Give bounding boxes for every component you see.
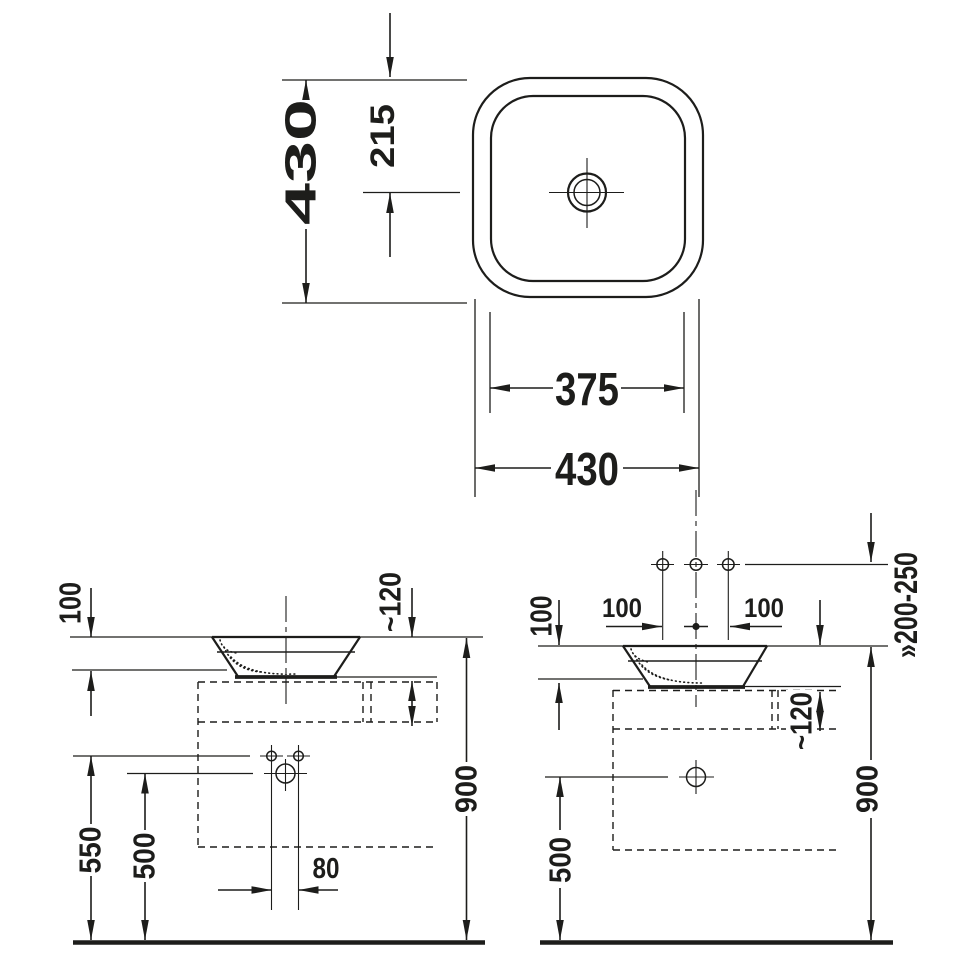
dim-label-overall-height: 430 bbox=[277, 99, 326, 225]
wall-tap-holes bbox=[651, 490, 740, 707]
dim-label-bowl-height-side: 100 bbox=[53, 582, 88, 624]
top-view-dimension-lines bbox=[306, 13, 699, 468]
basin-top-outline bbox=[473, 78, 703, 297]
cabinet-dashed-outline bbox=[198, 682, 437, 847]
dim-label-overall-width: 430 bbox=[555, 443, 619, 495]
top-view: 430 215 375 430 bbox=[277, 13, 704, 497]
dim-label-hole-spacing-right: 100 bbox=[744, 593, 784, 623]
dim-label-drain-height-side: 500 bbox=[127, 833, 162, 880]
tap-holes-side bbox=[260, 745, 310, 910]
dim-label-inner-width: 375 bbox=[555, 363, 619, 415]
dim-label-bowl-height-front: 100 bbox=[524, 596, 559, 637]
side-view-reference-lines bbox=[70, 637, 483, 774]
dim-label-wall-tap-height: »200-250 bbox=[888, 552, 924, 658]
front-view-reference-lines bbox=[538, 565, 888, 778]
front-view-dimension-lines bbox=[559, 513, 871, 940]
dim-label-tap-holes-height: 550 bbox=[73, 827, 108, 874]
dim-label-drain-height-front: 500 bbox=[543, 837, 578, 883]
basin-side-profile bbox=[212, 596, 360, 708]
basin-front-profile bbox=[623, 646, 767, 687]
dim-label-center-offset: 215 bbox=[364, 104, 402, 168]
washbasin-technical-drawing: 430 215 375 430 bbox=[0, 0, 980, 980]
side-view: 100 ~120 550 500 80 900 bbox=[53, 572, 486, 943]
drain-circle bbox=[549, 158, 624, 228]
dim-label-rim-height-front: 900 bbox=[850, 765, 885, 813]
front-view: 100 100 100 »200-250 ~120 500 900 bbox=[524, 490, 925, 943]
dim-label-counter-thickness-side: ~120 bbox=[373, 572, 408, 632]
side-view-dimension-lines bbox=[91, 588, 467, 940]
dim-label-hole-spacing: 80 bbox=[313, 853, 340, 885]
dim-label-rim-height-side: 900 bbox=[449, 765, 484, 813]
dim-label-counter-thickness-front: ~120 bbox=[784, 692, 819, 750]
drain-circle-front bbox=[679, 760, 714, 794]
dimension-drawing-page: 430 215 375 430 bbox=[0, 0, 980, 980]
dim-label-hole-spacing-left: 100 bbox=[602, 593, 642, 623]
